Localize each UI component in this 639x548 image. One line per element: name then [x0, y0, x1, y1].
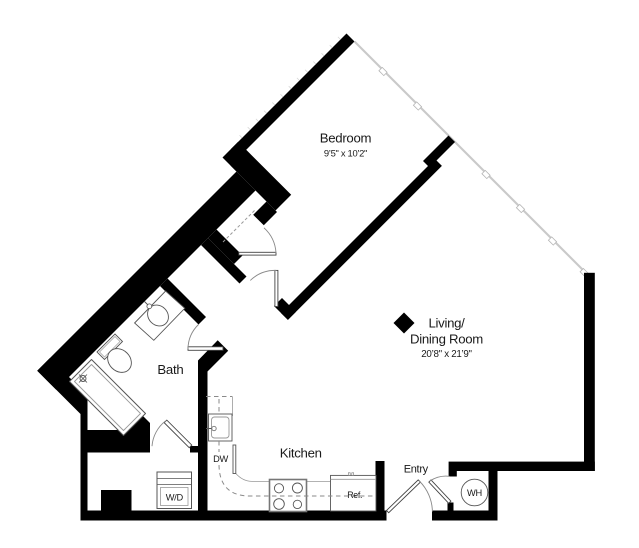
- svg-text:Bedroom: Bedroom: [320, 130, 372, 145]
- svg-text:Entry: Entry: [404, 464, 429, 476]
- svg-text:Ref.: Ref.: [347, 490, 362, 500]
- svg-text:WH: WH: [467, 488, 482, 498]
- svg-text:Living/: Living/: [428, 316, 465, 331]
- svg-text:Dining Room: Dining Room: [410, 332, 483, 347]
- svg-text:20’8" x 21’9": 20’8" x 21’9": [421, 349, 472, 360]
- svg-text:W/D: W/D: [166, 493, 184, 503]
- svg-text:9’5" x 10’2": 9’5" x 10’2": [324, 148, 367, 159]
- svg-text:Kitchen: Kitchen: [280, 446, 322, 461]
- svg-text:Bath: Bath: [157, 362, 183, 377]
- svg-text:DW: DW: [213, 454, 228, 464]
